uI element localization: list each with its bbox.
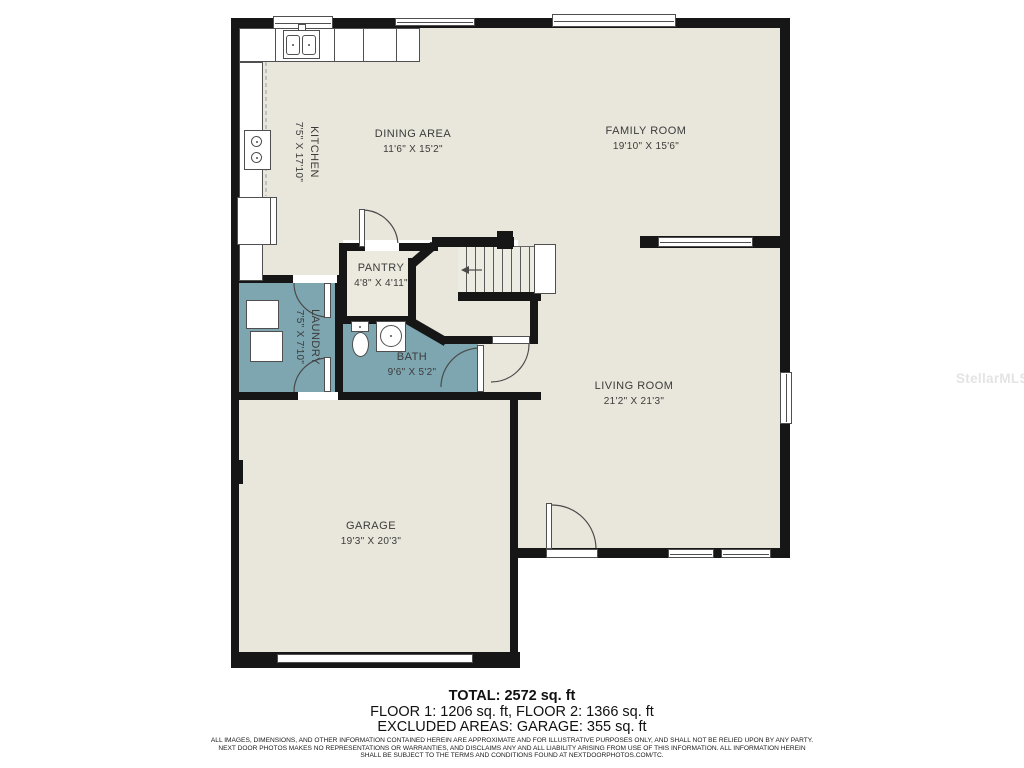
front-door-leaf bbox=[546, 503, 552, 549]
room-label-pantry: PANTRY 4'8" X 4'11" bbox=[354, 263, 408, 289]
fridge-door-line bbox=[270, 198, 271, 244]
wall-right bbox=[780, 18, 790, 558]
floor-plan-page: KITCHEN 7'5" X 17'10" DINING AREA 11'6" … bbox=[0, 0, 1024, 768]
total-area-text: TOTAL: 2572 sq. ft bbox=[0, 688, 1024, 704]
hall-door-threshold bbox=[492, 336, 530, 344]
room-dims: 7'5" X 7'10" bbox=[294, 309, 304, 365]
room-label-family: FAMILY ROOM 19'10" X 15'6" bbox=[606, 126, 687, 152]
window-family bbox=[552, 14, 676, 27]
bath-sink bbox=[380, 325, 402, 347]
room-label-laundry: LAUNDRY 7'5" X 7'10" bbox=[294, 309, 320, 365]
room-label-living: LIVING ROOM 21'2" X 21'3" bbox=[595, 381, 674, 407]
wall-hall-south bbox=[440, 336, 492, 344]
laundry-door-leaf bbox=[324, 283, 331, 318]
garage-door bbox=[277, 654, 473, 663]
wall-pantry-left bbox=[339, 243, 347, 324]
room-dims: 19'3" X 20'3" bbox=[341, 537, 401, 547]
kitchen-counter-left bbox=[239, 62, 263, 281]
floor-areas-text: FLOOR 1: 1206 sq. ft, FLOOR 2: 1366 sq. … bbox=[0, 704, 1024, 720]
counter-divider bbox=[396, 29, 397, 61]
wall-left bbox=[231, 18, 239, 668]
room-dims: 7'5" X 17'10" bbox=[293, 122, 303, 182]
counter-divider bbox=[363, 29, 364, 61]
front-door-threshold bbox=[546, 549, 598, 558]
laundry-door-opening bbox=[293, 275, 337, 283]
window-living-bottom-2 bbox=[721, 549, 771, 558]
dryer bbox=[250, 331, 283, 362]
room-dims: 21'2" X 21'3" bbox=[595, 397, 674, 407]
room-name: BATH bbox=[388, 352, 437, 363]
staircase bbox=[458, 246, 536, 292]
counter-divider bbox=[275, 29, 276, 61]
sink-basin-right bbox=[302, 35, 316, 55]
pantry-door-leaf bbox=[359, 209, 365, 247]
wall-garage-pilaster bbox=[231, 460, 243, 484]
sink-basin-left bbox=[286, 35, 300, 55]
stairs-landing bbox=[534, 244, 556, 294]
toilet-bowl bbox=[352, 332, 369, 357]
room-name: GARAGE bbox=[341, 521, 401, 532]
room-name: LIVING ROOM bbox=[595, 381, 674, 392]
refrigerator bbox=[237, 197, 277, 245]
pantry-door-opening bbox=[365, 243, 399, 251]
wall-stairs-post bbox=[497, 231, 513, 249]
window-living-right bbox=[780, 372, 792, 424]
wall-hall-right bbox=[530, 292, 538, 344]
wall-stairs-bottom bbox=[458, 292, 541, 301]
room-label-dining: DINING AREA 11'6" X 15'2" bbox=[375, 129, 451, 155]
disclaimer-line: ALL IMAGES, DIMENSIONS, AND OTHER INFORM… bbox=[0, 737, 1024, 745]
room-dims: 4'8" X 4'11" bbox=[354, 279, 408, 289]
excluded-areas-text: EXCLUDED AREAS: GARAGE: 355 sq. ft bbox=[0, 719, 1024, 735]
disclaimer-line: SHALL BE SUBJECT TO THE TERMS AND CONDIT… bbox=[0, 752, 1024, 760]
kitchen-counter-top bbox=[239, 28, 420, 62]
room-label-kitchen: KITCHEN 7'5" X 17'10" bbox=[293, 122, 319, 182]
stellar-mls-watermark: StellarMLS bbox=[956, 371, 1024, 386]
window-living-bottom-1 bbox=[668, 549, 714, 558]
laundry-garage-door-opening bbox=[298, 392, 338, 400]
room-label-garage: GARAGE 19'3" X 20'3" bbox=[341, 521, 401, 547]
room-name: PANTRY bbox=[354, 263, 408, 274]
cased-opening-family-living bbox=[658, 237, 753, 247]
room-label-bath: BATH 9'6" X 5'2" bbox=[388, 352, 437, 378]
toilet-tank bbox=[351, 321, 369, 332]
washer bbox=[246, 300, 279, 329]
room-name: DINING AREA bbox=[375, 129, 451, 140]
room-dims: 11'6" X 15'2" bbox=[375, 145, 451, 155]
room-name: FAMILY ROOM bbox=[606, 126, 687, 137]
wall-garage-right bbox=[510, 398, 518, 662]
burner-icon bbox=[251, 136, 262, 147]
room-name: KITCHEN bbox=[308, 122, 319, 182]
disclaimer-line: NEXT DOOR PHOTOS MAKES NO REPRESENTATION… bbox=[0, 745, 1024, 753]
room-dims: 9'6" X 5'2" bbox=[388, 368, 437, 378]
wall-pantry-right bbox=[408, 258, 416, 320]
kitchen-sink bbox=[283, 30, 320, 59]
counter-divider bbox=[334, 29, 335, 61]
window-dining bbox=[395, 18, 475, 26]
stove bbox=[244, 130, 271, 170]
room-name: LAUNDRY bbox=[309, 309, 320, 365]
room-dims: 19'10" X 15'6" bbox=[606, 142, 687, 152]
burner-icon bbox=[251, 152, 262, 163]
bath-door-leaf bbox=[477, 345, 484, 392]
laundry-garage-door-leaf bbox=[324, 357, 331, 392]
wall-mid-band bbox=[231, 392, 541, 400]
